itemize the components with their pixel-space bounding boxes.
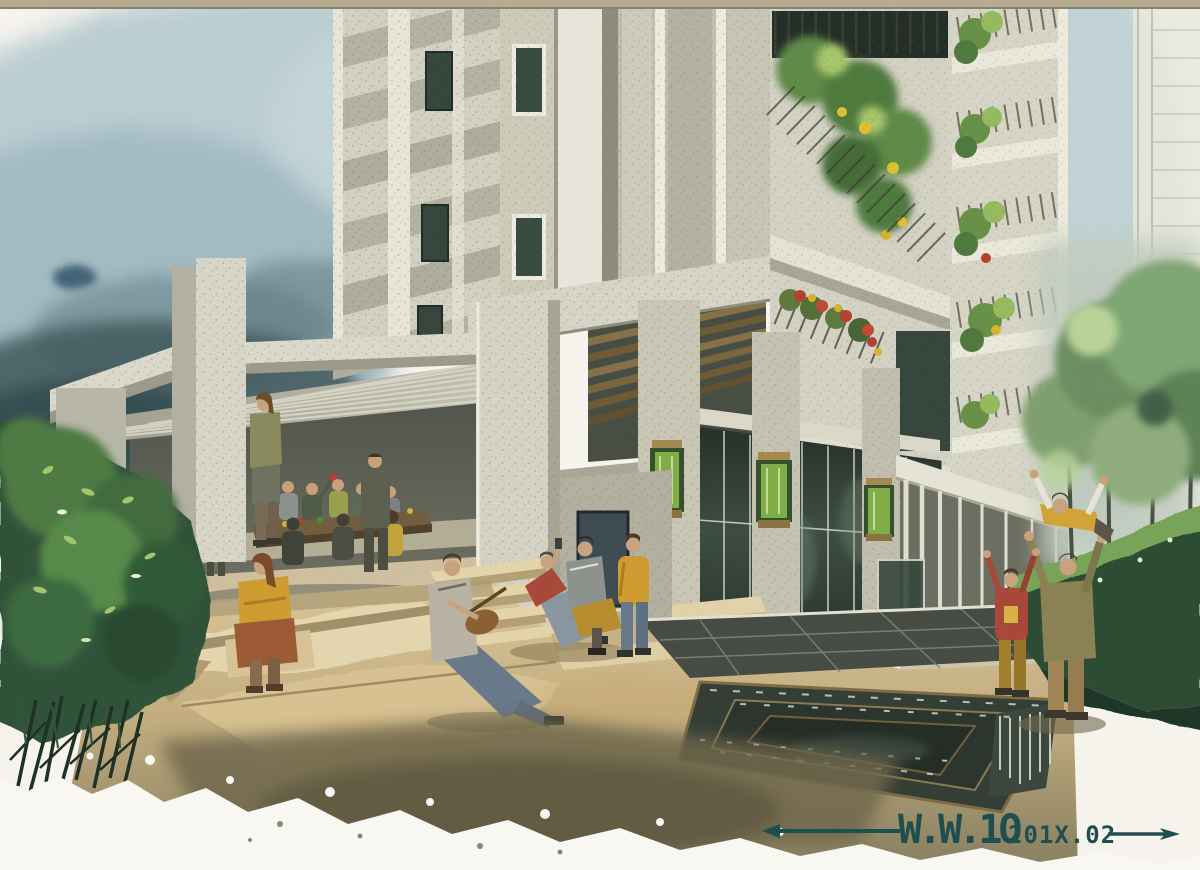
signature-artist: W.W.1O: [898, 807, 1021, 853]
paper-top-border: [0, 0, 1200, 9]
painting-canvas: W.W.1O 201X.02: [0, 0, 1200, 870]
lantern-sconce: [756, 452, 792, 528]
watercolor-painting: W.W.1O 201X.02: [0, 0, 1200, 870]
portal-upper-fins: [602, 6, 770, 302]
lantern-sconce: [864, 478, 894, 541]
signature-date: 201X.02: [1008, 821, 1116, 849]
white-fin: [558, 6, 602, 306]
